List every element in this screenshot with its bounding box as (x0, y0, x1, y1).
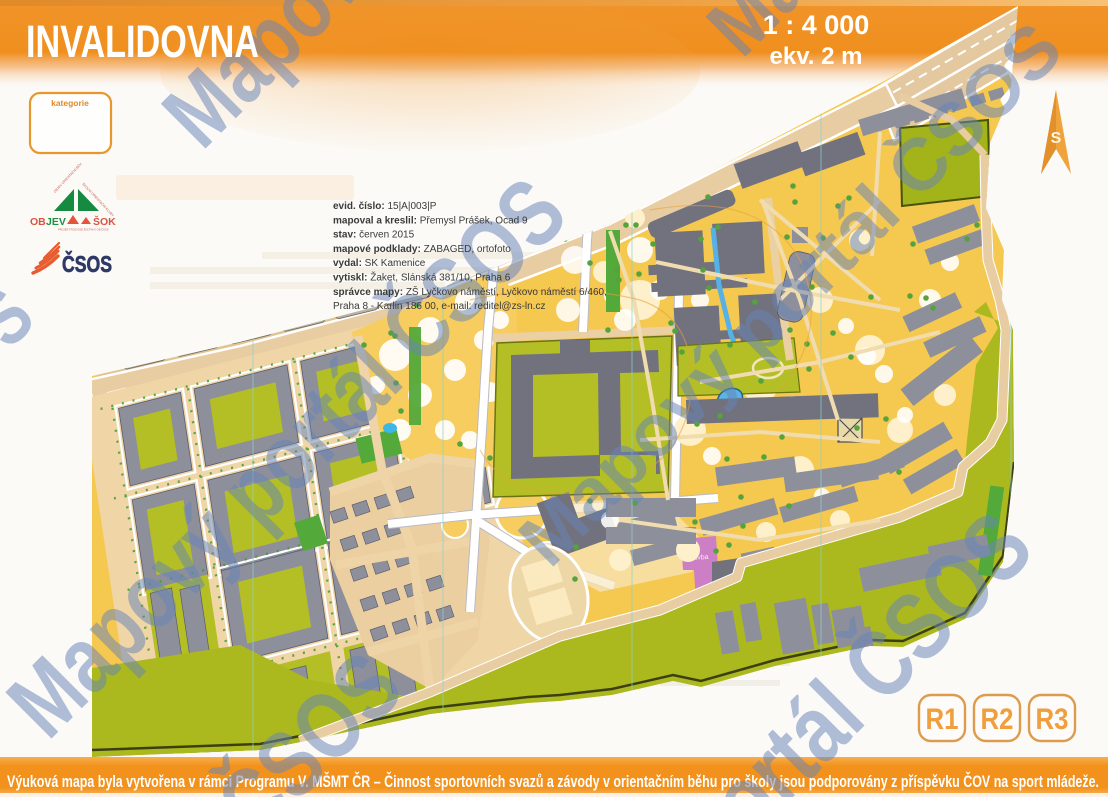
svg-text:vydal: SK Kamenice: vydal: SK Kamenice (333, 258, 426, 269)
svg-text:mapové podklady: ZABAGED, orto: mapové podklady: ZABAGED, ortofoto (333, 244, 511, 255)
svg-text:S: S (1051, 130, 1062, 147)
svg-text:JEV: JEV (46, 216, 66, 228)
svg-text:správce mapy: ZŠ Lyčkovo námě: správce mapy: ZŠ Lyčkovo náměstí, Lyčkov… (333, 285, 607, 298)
svg-text:1 : 4 000: 1 : 4 000 (763, 10, 870, 40)
svg-text:vytiskl: Žaket, Slánská 381/10: vytiskl: Žaket, Slánská 381/10, Praha 6 (333, 271, 511, 284)
svg-text:ŠOK: ŠOK (93, 215, 116, 228)
svg-text:ekv. 2 m: ekv. 2 m (770, 43, 863, 70)
svg-text:OB: OB (30, 216, 46, 228)
svg-text:R3: R3 (1036, 703, 1069, 736)
svg-text:Praha 8 - Karlin 186 00, e-mai: Praha 8 - Karlin 186 00, e-mail: reditel… (333, 301, 545, 312)
svg-text:kategorie: kategorie (51, 98, 89, 108)
svg-text:ČSOS: ČSOS (62, 250, 112, 277)
svg-text:INVALIDOVNA: INVALIDOVNA (26, 16, 259, 67)
svg-text:R2: R2 (981, 703, 1014, 736)
svg-text:Výuková mapa byla vytvořena v: Výuková mapa byla vytvořena v rámci Prog… (7, 772, 1099, 791)
svg-text:R1: R1 (926, 703, 959, 736)
svg-text:stav: červen 2015: stav: červen 2015 (333, 230, 415, 241)
svg-text:evid. číslo: 15|A|003|P: evid. číslo: 15|A|003|P (333, 201, 437, 212)
svg-text:mapoval a kreslil: Přemysl Prá: mapoval a kreslil: Přemysl Prášek, Ocad … (333, 215, 528, 226)
